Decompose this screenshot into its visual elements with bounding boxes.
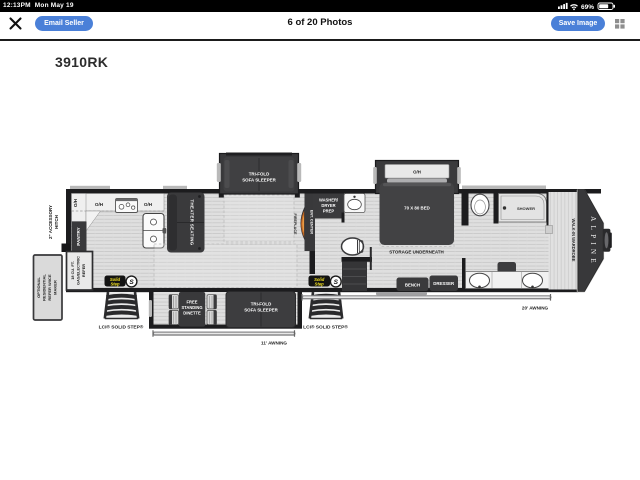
svg-text:2" ACCESSORY: 2" ACCESSORY xyxy=(48,205,53,239)
svg-text:O/H: O/H xyxy=(144,202,153,207)
svg-text:THEATER SEATING: THEATER SEATING xyxy=(190,200,195,246)
svg-text:REFER W/ICE: REFER W/ICE xyxy=(47,274,52,301)
svg-text:FIREPLACE: FIREPLACE xyxy=(293,214,297,235)
svg-text:BENCH: BENCH xyxy=(405,282,420,287)
svg-text:11' AWNING: 11' AWNING xyxy=(261,340,287,345)
svg-text:Step: Step xyxy=(315,281,325,286)
svg-text:STORAGE UNDERNEATH: STORAGE UNDERNEATH xyxy=(389,250,444,255)
svg-text:DRESSER: DRESSER xyxy=(433,281,455,286)
svg-text:OPTIONAL: OPTIONAL xyxy=(36,277,41,298)
svg-text:O/H: O/H xyxy=(413,170,421,175)
svg-text:18 CU. FT.: 18 CU. FT. xyxy=(70,261,75,280)
svg-text:ENT. CENTER: ENT. CENTER xyxy=(309,210,313,235)
svg-text:O/H: O/H xyxy=(95,202,104,207)
svg-text:TRI-FOLD: TRI-FOLD xyxy=(251,302,272,307)
svg-text:S: S xyxy=(334,279,339,286)
svg-text:SOFA SLEEPER: SOFA SLEEPER xyxy=(242,178,276,183)
svg-text:RESIDENTIAL: RESIDENTIAL xyxy=(42,274,47,301)
svg-text:SHOWER: SHOWER xyxy=(517,206,535,211)
svg-text:DINETTE: DINETTE xyxy=(183,311,201,316)
svg-text:70 X 80 BED: 70 X 80 BED xyxy=(404,206,430,211)
svg-text:WALK-IN WARDROBE: WALK-IN WARDROBE xyxy=(571,219,576,262)
svg-text:DRYER: DRYER xyxy=(321,203,335,208)
svg-text:20' AWNING: 20' AWNING xyxy=(522,305,549,310)
svg-text:GAS/ELECTRIC: GAS/ELECTRIC xyxy=(76,256,81,285)
svg-text:TRI-FOLD: TRI-FOLD xyxy=(249,172,270,177)
svg-text:STANDING: STANDING xyxy=(181,305,202,310)
svg-text:WASHER/: WASHER/ xyxy=(319,198,339,203)
svg-text:LCI® SOLID STEP®: LCI® SOLID STEP® xyxy=(303,323,348,330)
svg-text:SOFA SLEEPER: SOFA SLEEPER xyxy=(244,308,278,313)
svg-text:HITCH: HITCH xyxy=(54,215,59,229)
svg-text:ALPINE: ALPINE xyxy=(589,216,597,267)
svg-text:O/H: O/H xyxy=(73,198,78,207)
svg-text:PREP: PREP xyxy=(323,209,334,214)
svg-text:FREE: FREE xyxy=(187,300,198,305)
svg-text:LCI® SOLID STEP®: LCI® SOLID STEP® xyxy=(99,323,144,330)
svg-text:PANTRY: PANTRY xyxy=(76,227,81,245)
svg-text:MAKER: MAKER xyxy=(53,280,58,295)
svg-text:Step: Step xyxy=(110,281,120,286)
svg-text:S: S xyxy=(129,279,134,286)
svg-text:REFER: REFER xyxy=(81,264,86,277)
